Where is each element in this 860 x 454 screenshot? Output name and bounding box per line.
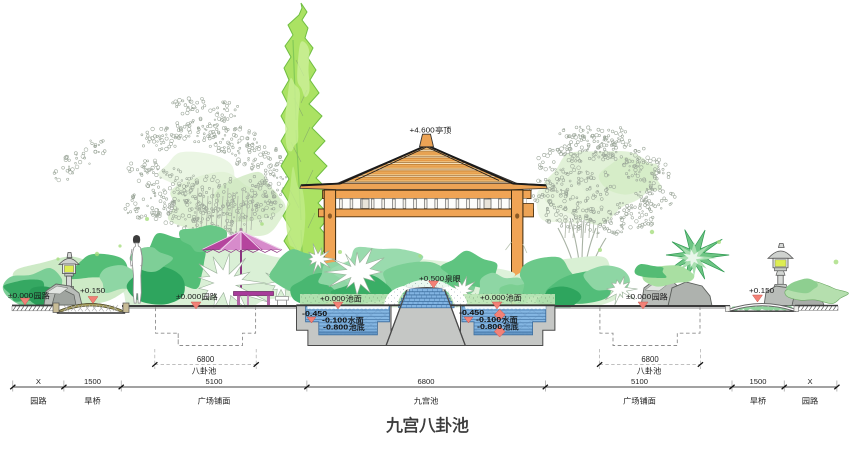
svg-text:X: X xyxy=(36,377,41,386)
svg-text:+0.000: +0.000 xyxy=(320,294,345,303)
svg-text:6800: 6800 xyxy=(418,377,435,386)
svg-text:+0.500: +0.500 xyxy=(419,274,444,283)
svg-text:+0.150: +0.150 xyxy=(80,286,105,295)
svg-text:1500: 1500 xyxy=(84,377,101,386)
svg-text:+0.000: +0.000 xyxy=(480,293,505,302)
svg-text:-0.800: -0.800 xyxy=(477,322,502,331)
svg-text:1500: 1500 xyxy=(750,377,767,386)
svg-text:+4.600: +4.600 xyxy=(410,126,435,135)
svg-text:5100: 5100 xyxy=(206,377,223,386)
svg-text:±0.000: ±0.000 xyxy=(626,292,651,301)
svg-text:X: X xyxy=(807,377,812,386)
svg-text:+0.150: +0.150 xyxy=(749,286,774,295)
svg-text:6800: 6800 xyxy=(197,355,215,364)
svg-text:±0.000: ±0.000 xyxy=(176,292,201,301)
svg-text:6800: 6800 xyxy=(641,355,659,364)
svg-text:±0.000: ±0.000 xyxy=(8,291,33,300)
svg-text:5100: 5100 xyxy=(631,377,648,386)
svg-text:-0.800: -0.800 xyxy=(323,323,348,332)
